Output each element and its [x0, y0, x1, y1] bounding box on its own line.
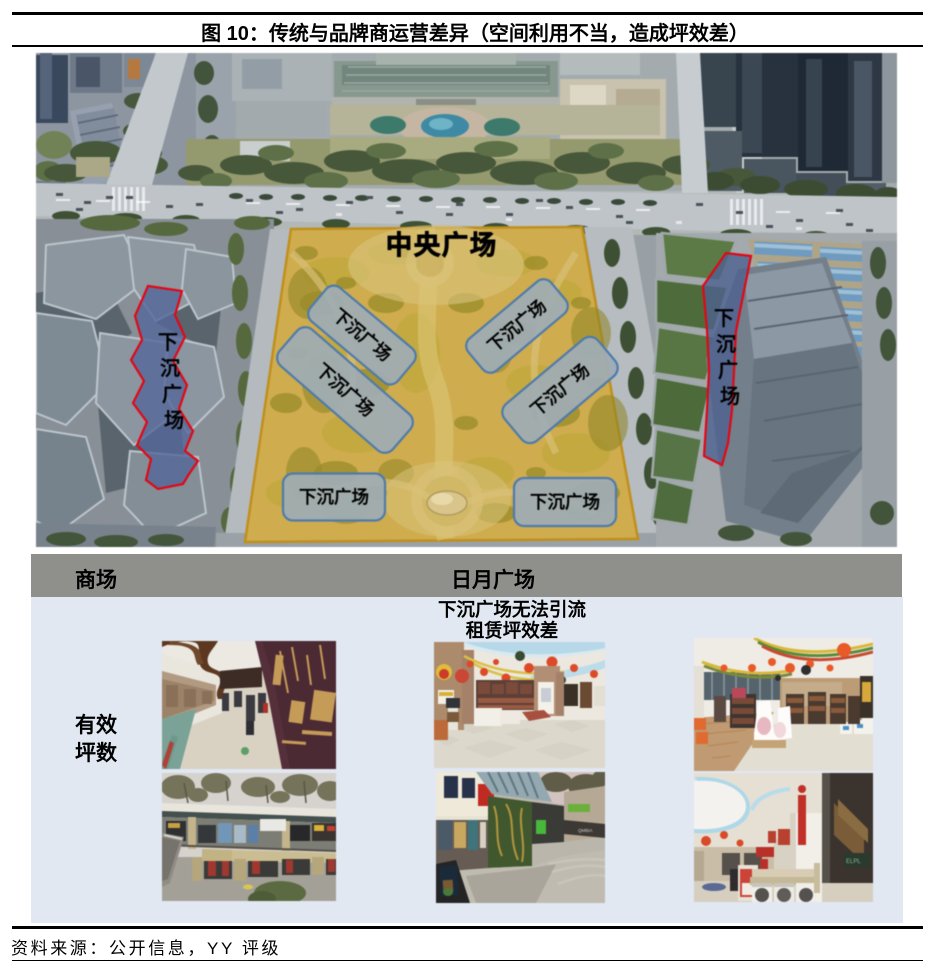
- svg-text:广: 广: [718, 358, 738, 382]
- svg-text:下: 下: [714, 308, 734, 330]
- svg-text:下沉广场: 下沉广场: [299, 487, 369, 507]
- svg-text:ELPL: ELPL: [846, 859, 861, 865]
- svg-text:下: 下: [158, 332, 178, 354]
- svg-text:场: 场: [164, 409, 184, 432]
- svg-text:沉: 沉: [160, 357, 180, 380]
- svg-text:中央广场: 中央广场: [386, 230, 498, 260]
- svg-text:场: 场: [720, 385, 740, 408]
- svg-text:下沉广场: 下沉广场: [530, 492, 600, 512]
- svg-text:QMBIA: QMBIA: [578, 828, 593, 833]
- svg-text:广: 广: [162, 382, 182, 406]
- svg-text:沉: 沉: [716, 333, 736, 356]
